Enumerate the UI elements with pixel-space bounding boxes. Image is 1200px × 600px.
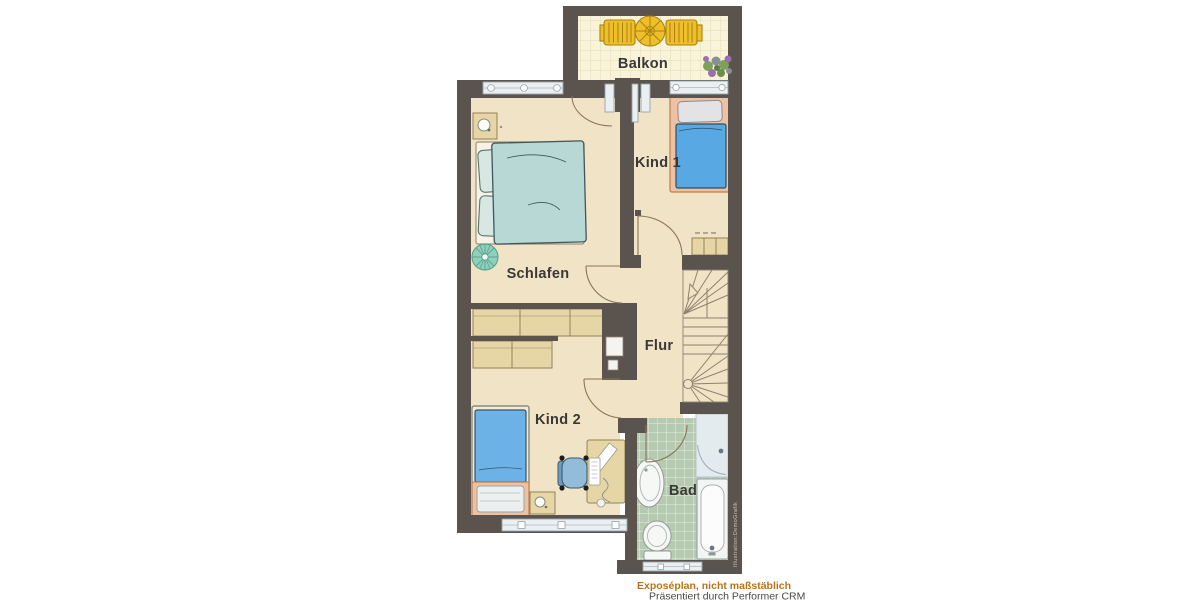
window-bad-bottom [643, 562, 702, 571]
room-label-kind2: Kind 2 [535, 412, 581, 428]
floor-plan-svg: Balkon Kind 1 Schlafen Flur Kind 2 Bad I… [0, 0, 1200, 600]
room-label-kind1: Kind 1 [635, 155, 681, 171]
lamp-icon [535, 497, 545, 507]
door-sidelite [605, 84, 614, 112]
balcony-chair-left [600, 20, 635, 45]
room-label-bad: Bad [669, 483, 697, 499]
single-bed-kind2 [472, 406, 529, 516]
window-kind2-bottom [502, 519, 627, 531]
desk-chair [558, 455, 589, 490]
toilet [643, 521, 671, 560]
caption-line2: Präsentiert durch Performer CRM [649, 591, 805, 600]
double-bed [476, 141, 586, 244]
single-bed-kind1 [670, 95, 730, 192]
stair-newel [684, 380, 693, 389]
floorplan-canvas: Balkon Kind 1 Schlafen Flur Kind 2 Bad I… [0, 0, 1200, 600]
room-label-schlafen: Schlafen [507, 266, 570, 282]
blanket [475, 410, 526, 482]
wall-right [728, 6, 742, 574]
room-label-balkon: Balkon [618, 56, 668, 72]
mouse [597, 499, 605, 507]
wall-schlafen-kind2 [471, 303, 602, 309]
wall-cap [620, 255, 641, 268]
wall-balcony-top [563, 6, 742, 16]
shower-head-icon [719, 449, 724, 454]
blanket [492, 141, 587, 244]
door-sidelite [641, 84, 650, 112]
chair-seat [562, 458, 587, 488]
wall-bad-left [625, 430, 637, 562]
round-rug [472, 244, 498, 270]
wall-left [457, 80, 471, 533]
lamp-dot [488, 129, 491, 132]
door-sidelite-kind1 [632, 84, 638, 122]
vertical-watermark: Illustration:DemoGrafik [733, 502, 739, 567]
balcony-chair-right [666, 20, 702, 45]
bathtub [697, 479, 728, 559]
balcony-table [635, 16, 665, 46]
window-kind1-top [670, 81, 728, 94]
pillow [678, 100, 723, 123]
nightstand-kind2 [530, 492, 555, 514]
wall-wardrobe [471, 336, 558, 341]
faucet-icon [710, 546, 715, 551]
room-label-flur: Flur [645, 338, 674, 354]
installation-shaft [602, 303, 637, 380]
blanket [676, 124, 726, 188]
shower [696, 414, 728, 477]
switch-dot [500, 126, 502, 128]
wall-flur-bad [680, 402, 742, 414]
wardrobe-row-b [473, 341, 552, 368]
wardrobe-row-a [473, 309, 620, 336]
window-schlafen-top [483, 82, 563, 94]
wall-kind1-bottom [682, 255, 742, 270]
sink [634, 459, 664, 507]
folded-blanket [477, 486, 524, 512]
desk [587, 440, 625, 507]
